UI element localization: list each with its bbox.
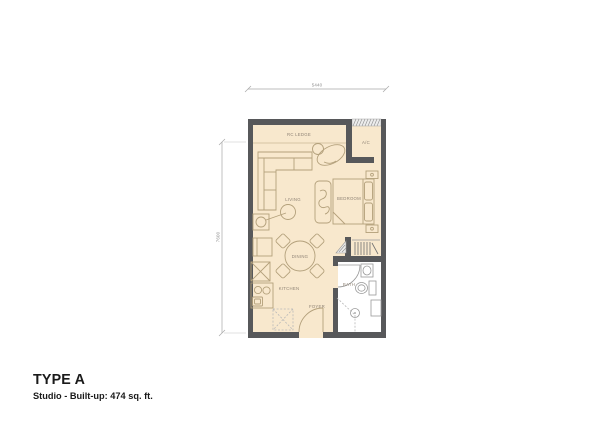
- wall-ac-bottom: [346, 157, 374, 163]
- label-foyer: FOYER: [309, 304, 325, 309]
- label-ac: A/C: [362, 140, 370, 145]
- wall-bottom-left: [248, 332, 299, 338]
- plan-area-subtitle: Studio - Built-up: 474 sq. ft.: [33, 391, 153, 402]
- wall-bath-top: [333, 256, 381, 262]
- title-block: TYPE A Studio - Built-up: 474 sq. ft.: [33, 371, 157, 402]
- ac-louver-hatch: [352, 119, 381, 126]
- wall-bottom-right: [323, 332, 386, 338]
- label-rc-ledge: RC LEDGE: [287, 132, 311, 137]
- floor-plan-page: 5440 7600: [0, 0, 600, 424]
- label-bath: BATH: [343, 282, 355, 287]
- label-kitchen: KITCHEN: [279, 286, 300, 291]
- plan-type-title: TYPE A: [33, 371, 150, 388]
- dimension-top: 5440: [245, 83, 389, 93]
- floor-plan-drawing: 5440 7600: [0, 0, 600, 424]
- dimension-left-value: 7600: [216, 231, 221, 242]
- label-living: LIVING: [285, 197, 301, 202]
- wall-bath-left-upper: [333, 256, 338, 266]
- bath-floor: [338, 262, 381, 333]
- dimension-top-value: 5440: [312, 83, 323, 88]
- wall-right: [381, 119, 386, 338]
- label-bedroom: BEDROOM: [337, 196, 361, 201]
- wall-bath-left-lower: [333, 288, 338, 338]
- bath-niche: [371, 300, 381, 316]
- label-dining: DINING: [292, 254, 309, 259]
- wall-top: [248, 119, 352, 125]
- bed: [333, 179, 374, 224]
- dimension-left: 7600: [216, 139, 247, 336]
- wall-ac-left: [346, 119, 352, 163]
